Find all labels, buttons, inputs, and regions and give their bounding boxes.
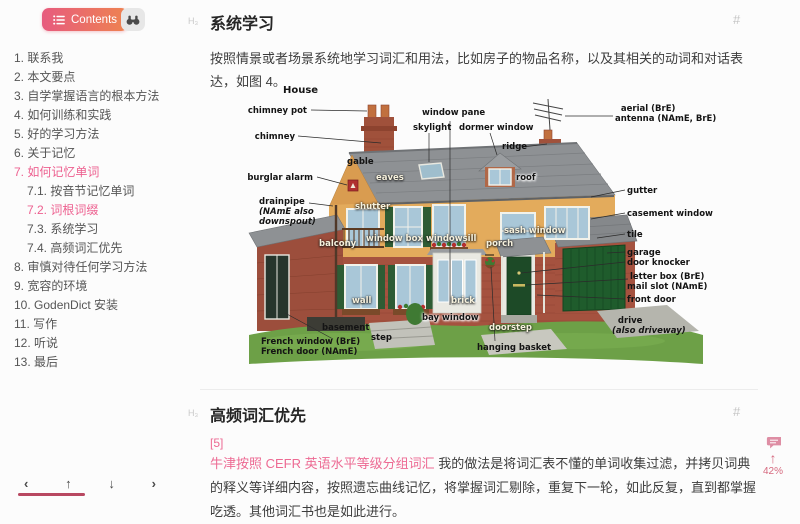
toc-item[interactable]: 7.1. 按音节记忆单词: [14, 182, 184, 201]
figure-label: basement: [322, 323, 369, 333]
figure-label: dormer window: [459, 123, 533, 133]
comments-icon[interactable]: [765, 436, 781, 450]
figure-label: doorstep: [489, 323, 532, 333]
toc-item[interactable]: 10. GodenDict 安装: [14, 296, 184, 315]
figure-label: brick: [451, 296, 475, 306]
figure-label: garage: [627, 248, 661, 258]
figure-label: windowsill: [426, 234, 476, 244]
figure-label: French window (BrE)French door (NAmE): [261, 337, 360, 357]
footnote-ref[interactable]: [5]: [210, 436, 223, 450]
heading-level-marker: H₃: [188, 16, 198, 26]
figure-label: eaves: [376, 173, 404, 183]
contents-button-label: Contents: [71, 14, 117, 26]
toc-item[interactable]: 1. 联系我: [14, 49, 184, 68]
toc-item[interactable]: 12. 听说: [14, 334, 184, 353]
toc-item[interactable]: 7.2. 词根词缀: [14, 201, 184, 220]
figure-label: chimney: [255, 132, 295, 142]
cefr-wordlist-link[interactable]: 牛津按照 CEFR 英语水平等级分组词汇: [210, 456, 435, 471]
toc-item[interactable]: 7.3. 系统学习: [14, 220, 184, 239]
heading-anchor-link[interactable]: #: [733, 12, 740, 27]
figure-label: hanging basket: [477, 343, 551, 353]
figure-label: door knocker: [627, 258, 690, 268]
figure-label: roof: [516, 173, 536, 183]
toc-item[interactable]: 7. 如何记忆单词: [14, 163, 184, 182]
section-divider: [200, 389, 758, 390]
scroll-percentage: 42%: [763, 466, 783, 477]
figure-label: window box: [366, 234, 423, 244]
left-extension: [249, 215, 345, 331]
toc-item[interactable]: 7.4. 高频词汇优先: [14, 239, 184, 258]
skylight: [419, 163, 444, 179]
toc-item[interactable]: 8. 审慎对待任何学习方法: [14, 258, 184, 277]
figure-label: chimney pot: [248, 106, 307, 116]
figure-label: skylight: [413, 123, 451, 133]
scroll-widget: ↑ 42%: [756, 436, 790, 477]
list-icon: [53, 15, 65, 25]
section-heading-high-frequency: 高频词汇优先: [210, 402, 306, 426]
figure-label: step: [371, 333, 392, 343]
section-heading-systematic-learning: 系统学习: [210, 10, 274, 34]
tv-aerial: [533, 99, 563, 130]
garage-door: [563, 245, 625, 311]
toc-list: 1. 联系我2. 本文要点3. 自学掌握语言的根本方法4. 如何训练和实践5. …: [14, 49, 184, 372]
heading-level-marker: H₃: [188, 408, 198, 418]
figure-title: House: [283, 85, 318, 96]
figure-label: sash window: [504, 226, 565, 236]
figure-label: mail slot (NAmE): [627, 282, 707, 292]
figure-label: shutter: [355, 202, 390, 212]
doorstep-slab: [501, 315, 537, 323]
figure-label: bay window: [422, 313, 479, 323]
figure-label: drainpipe(NAmE alsodownspout): [259, 197, 316, 227]
nav-up-icon[interactable]: ↑: [65, 476, 72, 491]
sidebar-nav: ‹ ↑ ↓ ›: [24, 476, 156, 491]
letter-box: [513, 284, 525, 287]
nav-down-icon[interactable]: ↓: [108, 476, 115, 491]
figure-label: burglar alarm: [247, 173, 313, 183]
window-box-window: [430, 205, 468, 254]
figure-label: balcony: [319, 239, 356, 249]
figure-label: front door: [627, 295, 676, 305]
figure-label: ridge: [502, 142, 527, 152]
lower-window-1: [337, 265, 385, 315]
toc-item[interactable]: 6. 关于记忆: [14, 144, 184, 163]
nav-prev-icon[interactable]: ‹: [24, 476, 28, 491]
binoculars-icon: [126, 14, 140, 26]
toc-item[interactable]: 13. 最后: [14, 353, 184, 372]
heading-anchor-link[interactable]: #: [733, 404, 740, 419]
toc-item[interactable]: 4. 如何训练和实践: [14, 106, 184, 125]
figure-label: aerial (BrE)antenna (NAmE, BrE): [615, 104, 716, 124]
contents-button[interactable]: Contents: [42, 8, 128, 31]
figure-label: gable: [347, 157, 374, 167]
find-button[interactable]: [121, 8, 145, 31]
figure-label: tile: [627, 230, 643, 240]
figure-label: letter box (BrE): [630, 272, 704, 282]
house-figure: House chimney potchimneyburglar alarmdra…: [245, 83, 745, 368]
figure-label: drive(also driveway): [612, 316, 686, 336]
door-knocker: [517, 271, 520, 274]
reading-progress-bar: [18, 493, 85, 496]
paragraph-high-frequency: 牛津按照 CEFR 英语水平等级分组词汇 我的做法是将词汇表不懂的单词收集过滤，…: [210, 452, 763, 524]
burglar-alarm-box: [348, 180, 358, 191]
toc-item[interactable]: 2. 本文要点: [14, 68, 184, 87]
toc-item[interactable]: 5. 好的学习方法: [14, 125, 184, 144]
figure-label: gutter: [627, 186, 657, 196]
figure-label: porch: [486, 239, 513, 249]
figure-label: wall: [352, 296, 371, 306]
back-to-top-icon[interactable]: ↑: [770, 451, 777, 465]
toc-item[interactable]: 11. 写作: [14, 315, 184, 334]
toc-item[interactable]: 9. 宽容的环境: [14, 277, 184, 296]
figure-label: window pane: [422, 108, 485, 118]
toc-item[interactable]: 3. 自学掌握语言的根本方法: [14, 87, 184, 106]
figure-label: casement window: [627, 209, 713, 219]
nav-next-icon[interactable]: ›: [152, 476, 156, 491]
